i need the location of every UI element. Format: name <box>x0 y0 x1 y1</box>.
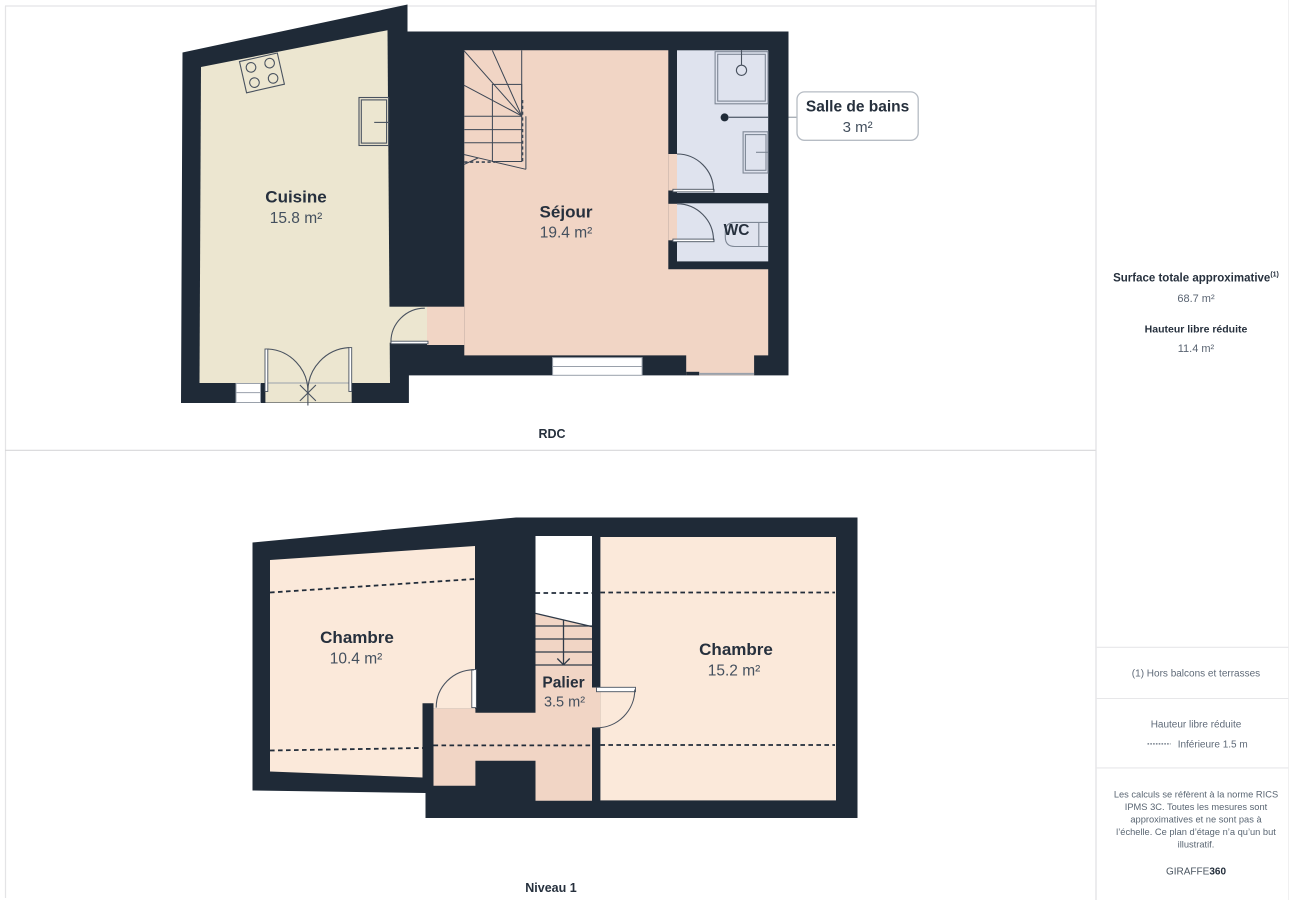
svg-text:(1) Hors balcons et terrasses: (1) Hors balcons et terrasses <box>1132 669 1260 680</box>
svg-text:Cuisine: Cuisine <box>265 188 326 207</box>
svg-text:15.8 m²: 15.8 m² <box>270 210 323 227</box>
svg-text:Salle de bains: Salle de bains <box>806 99 909 116</box>
svg-text:Surface totale approximative(1: Surface totale approximative(1) <box>1113 272 1279 285</box>
svg-text:19.4 m²: 19.4 m² <box>540 225 593 242</box>
svg-text:approximatives et ne sont pas: approximatives et ne sont pas à <box>1130 815 1262 825</box>
svg-text:Les calculs se réfèrent à la n: Les calculs se réfèrent à la norme RICS <box>1114 789 1278 799</box>
svg-text:Niveau 1: Niveau 1 <box>525 881 576 895</box>
svg-text:3 m²: 3 m² <box>843 119 873 136</box>
svg-text:Hauteur libre réduite: Hauteur libre réduite <box>1151 720 1242 731</box>
svg-text:Inférieure 1.5 m: Inférieure 1.5 m <box>1178 739 1248 750</box>
svg-text:11.4 m²: 11.4 m² <box>1178 343 1215 355</box>
svg-text:l’échelle. Ce plan d’étage n’a: l’échelle. Ce plan d’étage n’a qu’un but <box>1116 827 1276 837</box>
svg-text:Chambre: Chambre <box>699 640 773 659</box>
svg-text:3.5 m²: 3.5 m² <box>544 695 585 711</box>
svg-text:WC: WC <box>724 222 750 239</box>
svg-text:IPMS 3C. Toutes les mesures so: IPMS 3C. Toutes les mesures sont <box>1125 802 1268 812</box>
svg-text:illustratif.: illustratif. <box>1178 840 1215 850</box>
svg-text:GIRAFFE360: GIRAFFE360 <box>1166 867 1226 878</box>
svg-text:Hauteur libre réduite: Hauteur libre réduite <box>1145 324 1248 336</box>
svg-text:68.7 m²: 68.7 m² <box>1177 293 1215 305</box>
svg-text:10.4 m²: 10.4 m² <box>330 651 383 668</box>
svg-text:15.2 m²: 15.2 m² <box>708 663 761 680</box>
svg-text:Palier: Palier <box>542 675 584 692</box>
svg-text:Séjour: Séjour <box>540 203 593 222</box>
svg-text:RDC: RDC <box>538 427 565 441</box>
svg-text:Chambre: Chambre <box>320 628 394 647</box>
